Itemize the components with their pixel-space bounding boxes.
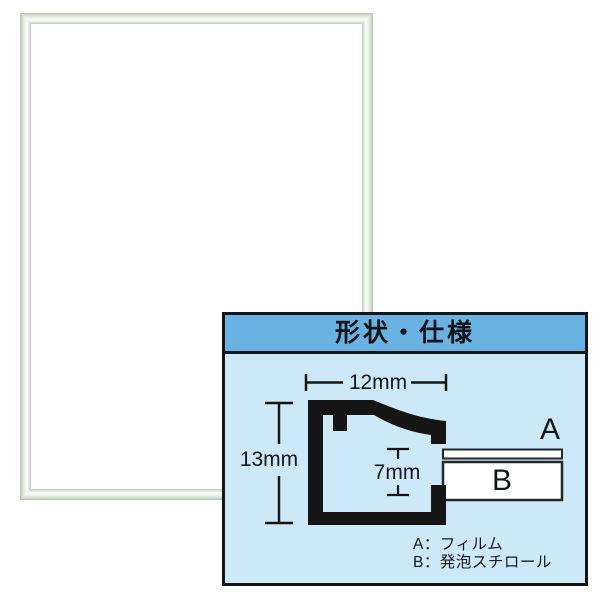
film-layer-shape [443,450,562,459]
profile-top-curved-lip [308,400,446,444]
dimension-inner-label: 7mm [361,462,433,483]
spec-panel: 形状・仕様 12mm 13mm [222,312,588,586]
profile-left-bar [308,400,323,525]
legend-line-a: A：フィルム [413,536,552,554]
spec-panel-body: 12mm 13mm 7mm A B A：フィルム B：発泡スチロール [225,354,585,583]
legend-line-b: B：発泡スチロール [413,554,552,572]
dimension-width-label: 12mm [335,372,421,393]
frame-edge-left [20,13,31,500]
part-label-b: B [465,466,539,496]
dimension-height-label: 13mm [233,449,305,470]
product-image: 形状・仕様 12mm 13mm [0,0,600,600]
profile-bottom-bar [308,512,446,525]
part-label-a: A [530,415,570,445]
legend: A：フィルム B：発泡スチロール [413,536,552,572]
frame-edge-top [20,13,373,24]
profile-bottom-right-hook [431,485,446,525]
spec-panel-header: 形状・仕様 [225,315,585,354]
spec-panel-title: 形状・仕様 [335,321,475,346]
